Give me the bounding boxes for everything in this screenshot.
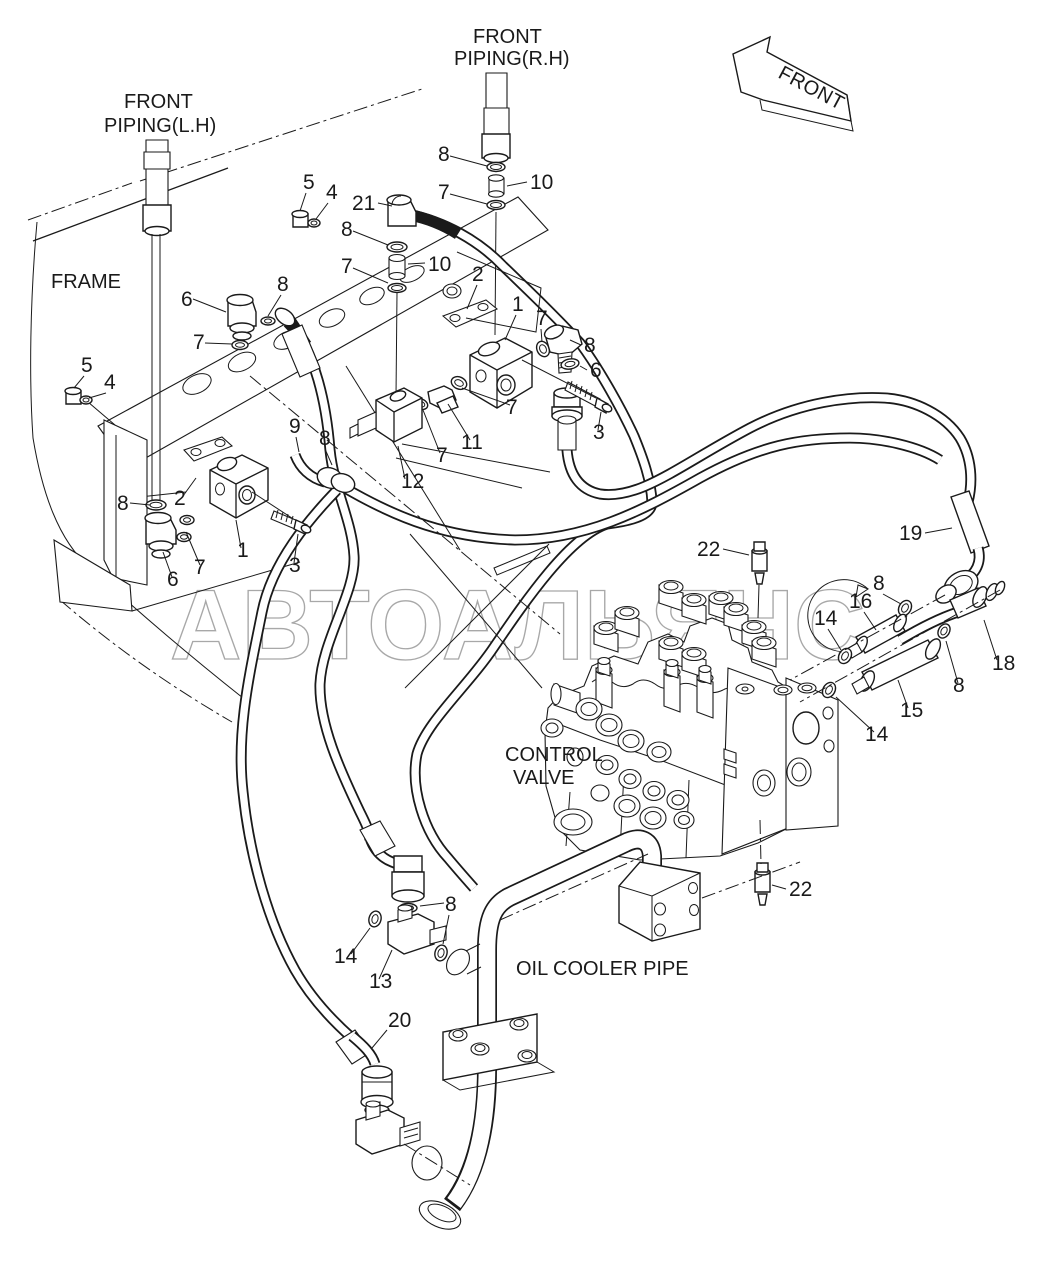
svg-text:1: 1: [512, 293, 524, 316]
svg-text:FRONT: FRONT: [473, 26, 542, 48]
svg-text:2: 2: [174, 487, 186, 510]
svg-text:2: 2: [472, 263, 484, 286]
svg-text:9: 9: [289, 415, 301, 438]
svg-text:7: 7: [193, 331, 205, 354]
svg-text:OIL COOLER PIPE: OIL COOLER PIPE: [516, 958, 689, 980]
svg-text:10: 10: [530, 171, 553, 194]
svg-text:5: 5: [303, 171, 315, 194]
svg-text:15: 15: [900, 699, 923, 722]
svg-text:FRONT: FRONT: [124, 91, 193, 113]
svg-text:5: 5: [81, 354, 93, 377]
svg-text:7: 7: [438, 181, 450, 204]
svg-text:PIPING(L.H): PIPING(L.H): [104, 115, 216, 137]
svg-text:1: 1: [237, 539, 249, 562]
svg-text:8: 8: [445, 893, 457, 916]
svg-text:22: 22: [697, 538, 720, 561]
svg-text:11: 11: [461, 431, 483, 454]
svg-text:6: 6: [181, 288, 193, 311]
svg-text:PIPING(R.H): PIPING(R.H): [454, 48, 570, 70]
svg-text:8: 8: [584, 334, 596, 357]
svg-text:CONTROL: CONTROL: [505, 744, 603, 766]
svg-text:10: 10: [428, 253, 451, 276]
svg-text:16: 16: [849, 590, 872, 613]
svg-text:7: 7: [341, 255, 353, 278]
svg-text:21: 21: [352, 192, 375, 215]
svg-text:14: 14: [814, 607, 838, 630]
svg-text:22: 22: [789, 878, 812, 901]
svg-text:FRAME: FRAME: [51, 271, 121, 293]
svg-text:13: 13: [369, 970, 392, 993]
svg-text:7: 7: [194, 556, 206, 579]
svg-text:14: 14: [334, 945, 358, 968]
svg-text:12: 12: [401, 470, 424, 493]
svg-text:8: 8: [953, 674, 965, 697]
svg-text:8: 8: [341, 218, 353, 241]
svg-text:8: 8: [277, 273, 289, 296]
svg-text:6: 6: [167, 568, 179, 591]
svg-text:8: 8: [438, 143, 450, 166]
svg-text:20: 20: [388, 1009, 411, 1032]
svg-text:VALVE: VALVE: [513, 767, 575, 789]
svg-text:7: 7: [506, 396, 518, 419]
svg-text:8: 8: [117, 492, 129, 515]
svg-text:4: 4: [104, 371, 116, 394]
svg-text:19: 19: [899, 522, 922, 545]
svg-text:4: 4: [326, 181, 338, 204]
svg-text:7: 7: [536, 307, 548, 330]
svg-text:8: 8: [873, 572, 885, 595]
svg-text:6: 6: [590, 359, 602, 382]
svg-text:8: 8: [319, 427, 331, 450]
